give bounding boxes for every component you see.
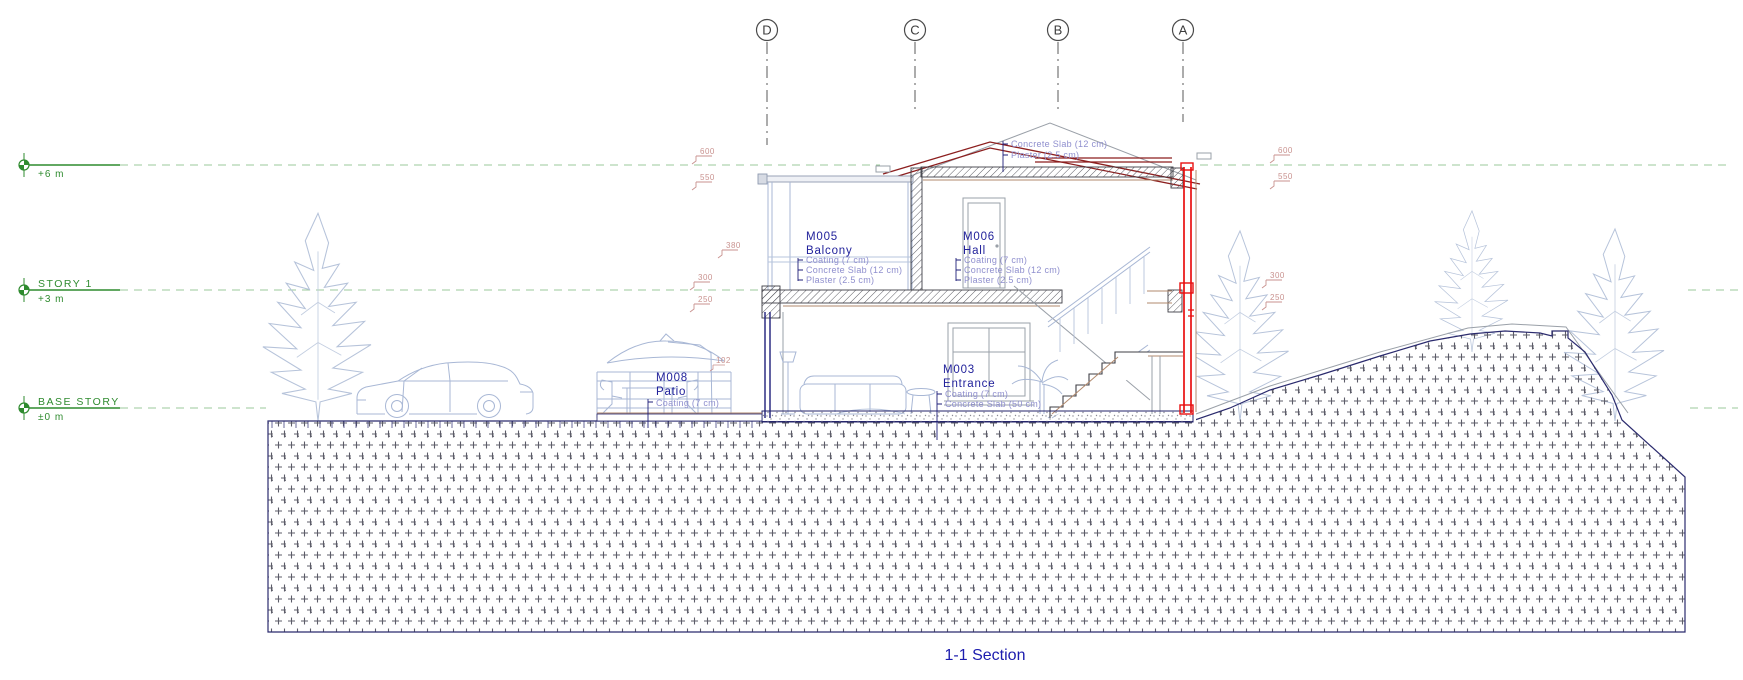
level-marker-base[interactable]: BASE STORY ±0 m [19, 396, 120, 423]
svg-text:600: 600 [1278, 146, 1293, 155]
level-elevation: +6 m [38, 169, 65, 180]
spot-elevation: 600 [1270, 146, 1293, 163]
left-gutter [876, 166, 890, 172]
svg-text:250: 250 [1270, 293, 1285, 302]
section-title[interactable]: 1-1 Section [945, 647, 1026, 664]
spot-elevations-right[interactable]: 600 550 300 250 [1262, 146, 1293, 310]
grid-letter: D [762, 23, 771, 38]
car[interactable] [357, 362, 533, 418]
layer-callout: Coating (7 cm) [656, 398, 719, 408]
spot-elevation: 250 [690, 295, 713, 312]
spot-elevation: 300 [1262, 271, 1285, 288]
room-id: M005 [806, 231, 838, 243]
grid-axis-A[interactable]: A [1173, 20, 1194, 123]
spot-elevation: 380 [718, 241, 741, 258]
grid-axis-D[interactable]: D [757, 20, 778, 146]
grid-letter: C [910, 23, 919, 38]
level-name: STORY 1 [38, 278, 93, 290]
room-id: M006 [963, 231, 995, 243]
svg-text:102: 102 [716, 356, 731, 365]
room-id: M008 [656, 372, 688, 384]
right-wall-top-cut[interactable] [1171, 168, 1183, 188]
layer-callout: Plaster (2.5 cm) [806, 275, 874, 285]
story-levels: +6 m STORY 1 +3 m BASE STORY ±0 m [19, 153, 120, 423]
layer-callout: Coating (7 cm) [964, 255, 1027, 265]
room-name: Patio [656, 386, 686, 398]
story-slab-cut[interactable] [762, 290, 1062, 303]
grid-letter: A [1179, 23, 1188, 38]
patio-slab[interactable] [597, 414, 762, 421]
layer-callout: Concrete Slab (50 cm) [945, 399, 1041, 409]
svg-text:250: 250 [698, 295, 713, 304]
layer-callout: Plaster (2.5 cm) [964, 275, 1032, 285]
svg-text:550: 550 [1278, 172, 1293, 181]
svg-text:550: 550 [700, 173, 715, 182]
spot-elevation: 102 [710, 356, 731, 371]
building-section [597, 123, 1211, 422]
cad-section-viewport: M005 Balcony Coating (7 cm) Concrete Sla… [0, 0, 1743, 680]
spot-elevation: 600 [692, 147, 715, 164]
level-marker-plus6[interactable]: +6 m [19, 153, 120, 180]
grid-axes: D C B A [757, 20, 1194, 146]
right-gutter [1197, 153, 1211, 159]
level-elevation: +3 m [38, 294, 65, 305]
level-elevation: ±0 m [38, 412, 64, 423]
layer-callout: Coating (7 cm) [806, 255, 869, 265]
grid-axis-B[interactable]: B [1048, 20, 1069, 111]
svg-text:380: 380 [726, 241, 741, 250]
spot-elevations-left[interactable]: 600 550 380 300 250 102 [690, 147, 741, 371]
room-id: M003 [943, 364, 975, 376]
section-drawing: M005 Balcony Coating (7 cm) Concrete Sla… [0, 0, 1743, 680]
ground-slab-cut[interactable] [762, 411, 1193, 422]
svg-text:600: 600 [700, 147, 715, 156]
hall-left-wall-cut[interactable] [911, 168, 922, 290]
layer-callout: Plaster (2.5 cm) [1011, 150, 1079, 160]
level-name: BASE STORY [38, 396, 120, 408]
layer-callout: Concrete Slab (12 cm) [806, 265, 902, 275]
svg-text:300: 300 [1270, 271, 1285, 280]
spot-elevation: 550 [1270, 172, 1293, 189]
level-marker-story1[interactable]: STORY 1 +3 m [19, 278, 120, 305]
pavement-tick-hatch [272, 421, 752, 428]
layer-callout: Coating (7 cm) [945, 389, 1008, 399]
svg-text:300: 300 [698, 273, 713, 282]
pine-tree[interactable] [1435, 211, 1508, 352]
grid-letter: B [1054, 23, 1063, 38]
roof-slab-cut[interactable] [921, 167, 1173, 177]
spot-elevation: 300 [690, 273, 713, 290]
pine-tree[interactable] [263, 213, 371, 421]
grid-axis-C[interactable]: C [905, 20, 926, 113]
layer-callout: Concrete Slab (12 cm) [964, 265, 1060, 275]
layer-callout: Concrete Slab (12 cm) [1011, 139, 1107, 149]
spot-elevation: 550 [692, 173, 715, 190]
